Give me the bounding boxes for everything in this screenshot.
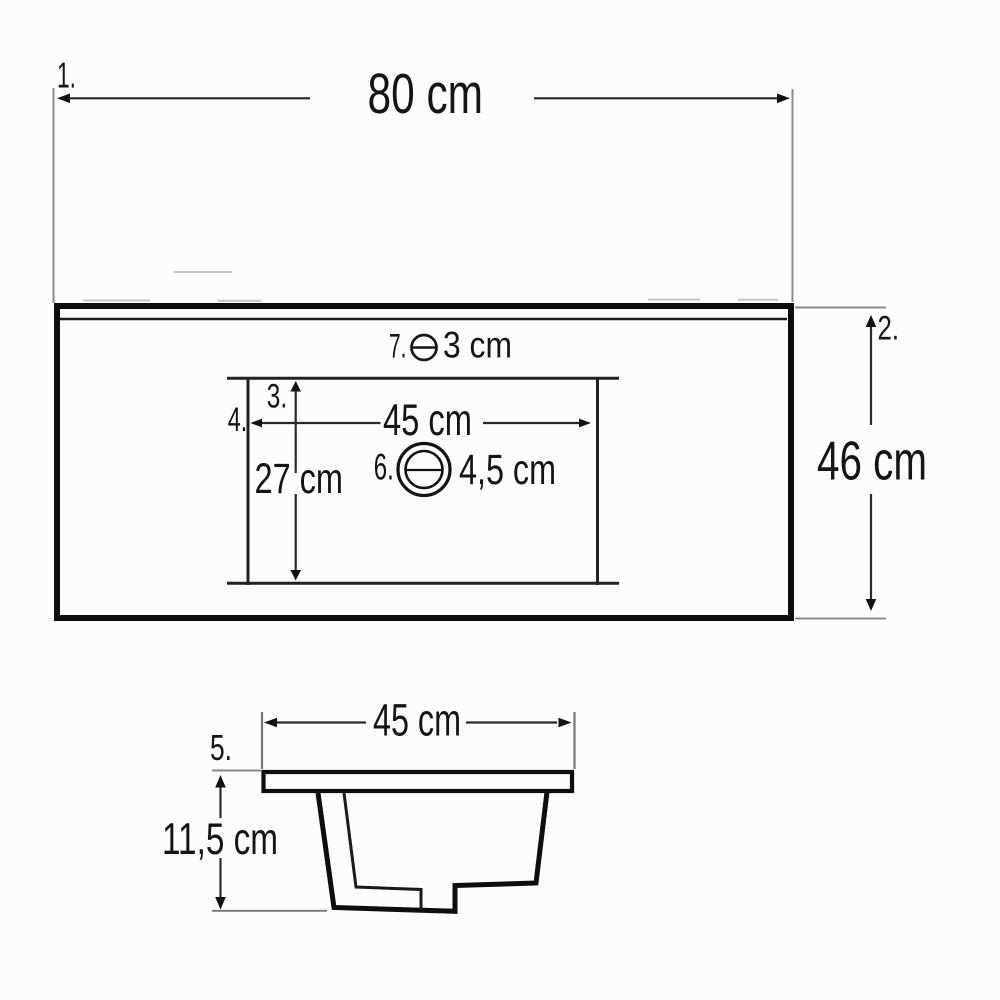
svg-text:4.: 4. [228,401,248,439]
svg-text:5.: 5. [210,727,232,768]
svg-text:11,5 cm: 11,5 cm [162,815,278,864]
svg-text:27 cm: 27 cm [255,455,344,502]
svg-text:45 cm: 45 cm [383,396,472,445]
svg-text:6.: 6. [374,447,394,488]
svg-text:7.: 7. [389,328,407,366]
svg-text:1.: 1. [57,55,76,96]
svg-text:3 cm: 3 cm [443,325,512,366]
svg-text:2.: 2. [878,310,900,348]
svg-text:80 cm: 80 cm [368,62,484,126]
svg-text:3.: 3. [267,377,287,415]
svg-text:45 cm: 45 cm [373,695,461,746]
svg-text:46 cm: 46 cm [817,430,927,492]
svg-text:4,5 cm: 4,5 cm [459,446,556,493]
